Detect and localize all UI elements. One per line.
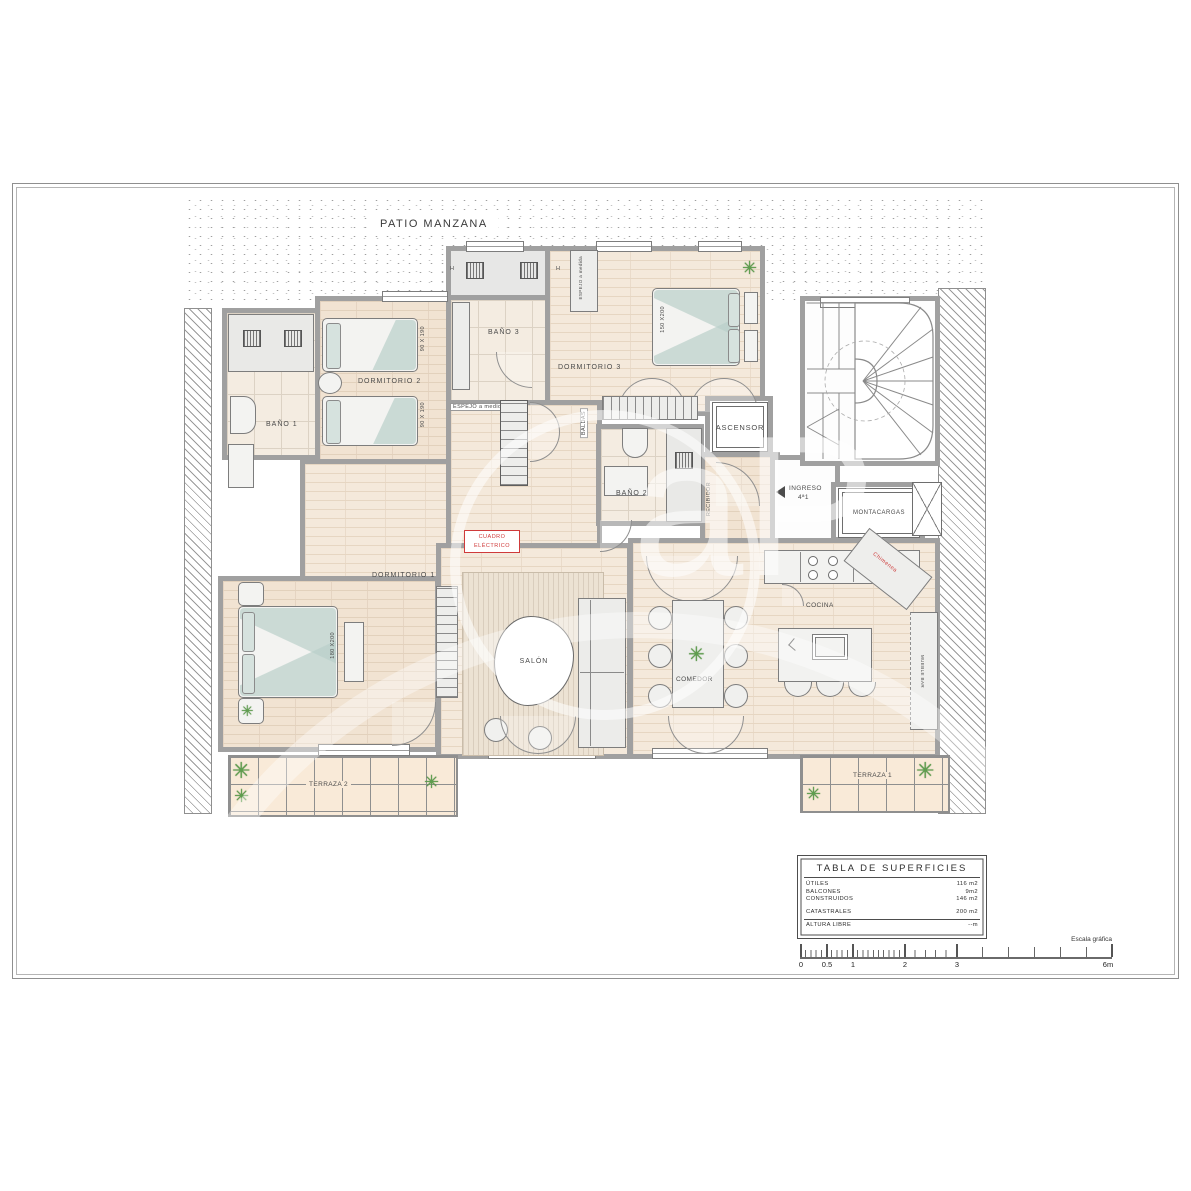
surface-table: TABLA DE SUPERFICIES ÚTILES116 m2 BALCON…: [797, 855, 987, 939]
room-label-terraza2: TERRAZA 2: [306, 781, 351, 788]
plant-icon: ✳: [232, 758, 250, 784]
row-label: BALCONES: [806, 889, 841, 897]
scale-tick-label: 2: [903, 960, 907, 969]
vanity-banio1: [228, 444, 254, 488]
plant-icon: ✳: [742, 258, 757, 279]
row-value: 116 m2: [957, 881, 978, 889]
party-wall-hatch-right: [938, 288, 986, 814]
plant-icon: ✳: [688, 642, 705, 667]
pillow: [728, 329, 740, 363]
row-value: --m: [968, 922, 978, 930]
table-row: CATASTRALES200 m2: [804, 909, 980, 917]
cuadro-electrico-box: CUADRO ELÉCTRICO: [464, 530, 520, 553]
sofa-cushion-line: [580, 672, 624, 673]
window: [698, 241, 742, 252]
dining-chair: [648, 644, 672, 668]
room-label-dormitorio2: DORMITORIO 2: [358, 378, 421, 385]
room-label-comedor: COMEDOR: [676, 676, 713, 683]
island-sink: [812, 634, 848, 660]
row-value: 200 m2: [956, 909, 978, 917]
scale-tick-label: 1: [851, 960, 855, 969]
room-label-terraza1: TERRAZA 1: [850, 772, 895, 779]
table-row: ALTURA LIBRE--m: [804, 922, 980, 930]
room-label-banio3: BAÑO 3: [488, 329, 520, 336]
nightstand: [238, 582, 264, 606]
cuadro-label-1: CUADRO: [465, 533, 519, 542]
room-label-banio1: BAÑO 1: [266, 421, 298, 428]
chimenea-label: Chimenea: [871, 551, 898, 574]
plant-icon: ✳: [806, 784, 821, 805]
hob-burner-icon: [808, 570, 818, 580]
scale-minor-ticks: [956, 947, 1113, 957]
staircase: [803, 299, 937, 463]
scale-tick-label: 6m: [1103, 960, 1113, 969]
row-label: ALTURA LIBRE: [806, 922, 851, 930]
baldas-shelf: [602, 396, 698, 420]
scale-major-tick: [904, 944, 906, 957]
table-row: CONSTRUIDOS146 m2: [804, 896, 980, 904]
sofa-seat-line: [590, 600, 591, 746]
window: [466, 241, 524, 252]
linen-shelves: [500, 400, 528, 486]
scale-major-tick: [826, 944, 828, 957]
shower-drain-icon: [243, 330, 261, 347]
dining-chair: [724, 606, 748, 630]
shower-drain-icon: [520, 262, 538, 279]
sofa: [578, 598, 626, 748]
recibidor-label: RECIBIDOR: [706, 482, 712, 516]
dining-chair: [724, 644, 748, 668]
montacargas-label: MONTACARGAS: [853, 510, 905, 516]
room-label-dormitorio1: DORMITORIO 1: [372, 572, 435, 579]
shower-handle-label: H: [450, 266, 454, 272]
ingreso-floor-label: 4ª1: [798, 494, 809, 501]
ascensor-cab: ASCENSOR: [712, 402, 768, 452]
dining-chair: [648, 684, 672, 708]
nightstand: [744, 330, 758, 362]
scale-minor-ticks: [904, 950, 956, 957]
room-label-salon: SALÓN: [520, 658, 549, 665]
hob-burner-icon: [828, 570, 838, 580]
scale-major-tick: [800, 944, 802, 957]
pillow: [326, 323, 341, 369]
plant-icon: ✳: [424, 772, 439, 793]
plant-icon: ✳: [916, 758, 934, 784]
scale-major-tick: [1111, 944, 1113, 957]
row-label: ÚTILES: [806, 881, 829, 889]
bedside-table: [318, 372, 342, 394]
nightstand: [744, 292, 758, 324]
pillow: [242, 654, 255, 694]
bed-bench: [344, 622, 364, 682]
mueble-bar-label: MUEBLE BAR: [920, 655, 925, 688]
ingreso-arrow-icon: [776, 486, 785, 498]
row-value: 146 m2: [956, 896, 978, 904]
shower-handle-label: H: [556, 266, 560, 272]
row-label: CATASTRALES: [806, 909, 851, 917]
wardrobe-dorm3: [570, 250, 598, 312]
table-separator: [804, 919, 980, 920]
window: [596, 241, 652, 252]
dining-chair: [724, 684, 748, 708]
shower-drain-icon: [284, 330, 302, 347]
cuadro-label-2: ELÉCTRICO: [465, 542, 519, 551]
patio-label: PATIO MANZANA: [370, 216, 498, 232]
table-row: BALCONES9m2: [804, 889, 980, 897]
scale-caption: Escala gráfica: [1071, 936, 1112, 943]
shower-drain-icon: [466, 262, 484, 279]
room-label-cocina: COCINA: [806, 602, 834, 609]
mueble-bar: MUEBLE BAR: [910, 612, 938, 730]
table-row: ÚTILES116 m2: [804, 881, 980, 889]
espejo-label-vertical: ESPEJO a medida: [578, 256, 583, 300]
plant-icon: ✳: [241, 702, 254, 720]
pillow: [326, 400, 341, 444]
room-label-dormitorio3: DORMITORIO 3: [558, 364, 621, 371]
scale-tick-label: 0: [799, 960, 803, 969]
ascensor-label: ASCENSOR: [716, 423, 765, 432]
party-wall-hatch-left: [184, 308, 212, 814]
bed-fold: [654, 290, 738, 364]
pillow: [728, 293, 740, 327]
shower-banio2: [666, 428, 702, 522]
toilet-banio1: [230, 396, 256, 434]
row-value: 9m2: [966, 889, 978, 897]
montacargas-cab: MONTACARGAS: [838, 488, 920, 538]
vanity-banio3: [452, 302, 470, 390]
scale-bar: Escala gráfica 0 0.5 1 2 3 6m: [800, 938, 1112, 972]
bed-size-label: 180 X200: [330, 632, 336, 659]
scale-tick-label: 3: [955, 960, 959, 969]
hob-burner-icon: [808, 556, 818, 566]
bed-size-label: 150 X200: [660, 306, 666, 333]
scale-major-tick: [956, 944, 958, 957]
scale-line: [800, 957, 1112, 959]
surface-table-title: TABLA DE SUPERFICIES: [804, 861, 980, 878]
ingreso-label: INGRESO: [789, 485, 822, 492]
scale-tick-label: 0.5: [822, 960, 832, 969]
room-label-banio2: BAÑO 2: [616, 490, 648, 497]
dining-chair: [648, 606, 672, 630]
plant-icon: ✳: [234, 786, 249, 807]
bed-size-label: 90 X 190: [420, 326, 426, 351]
hob-burner-icon: [828, 556, 838, 566]
pillow: [242, 612, 255, 652]
bed-size-label: 90 X 190: [420, 402, 426, 427]
shaft-xbox: [912, 482, 942, 536]
window: [382, 291, 448, 302]
toilet-banio2: [622, 428, 648, 458]
baldas-label: BALDAS: [580, 408, 588, 438]
shower-drain-icon: [675, 452, 693, 469]
row-label: CONSTRUIDOS: [806, 896, 853, 904]
scale-major-tick: [852, 944, 854, 957]
wardrobe-dorm1: [436, 586, 458, 698]
